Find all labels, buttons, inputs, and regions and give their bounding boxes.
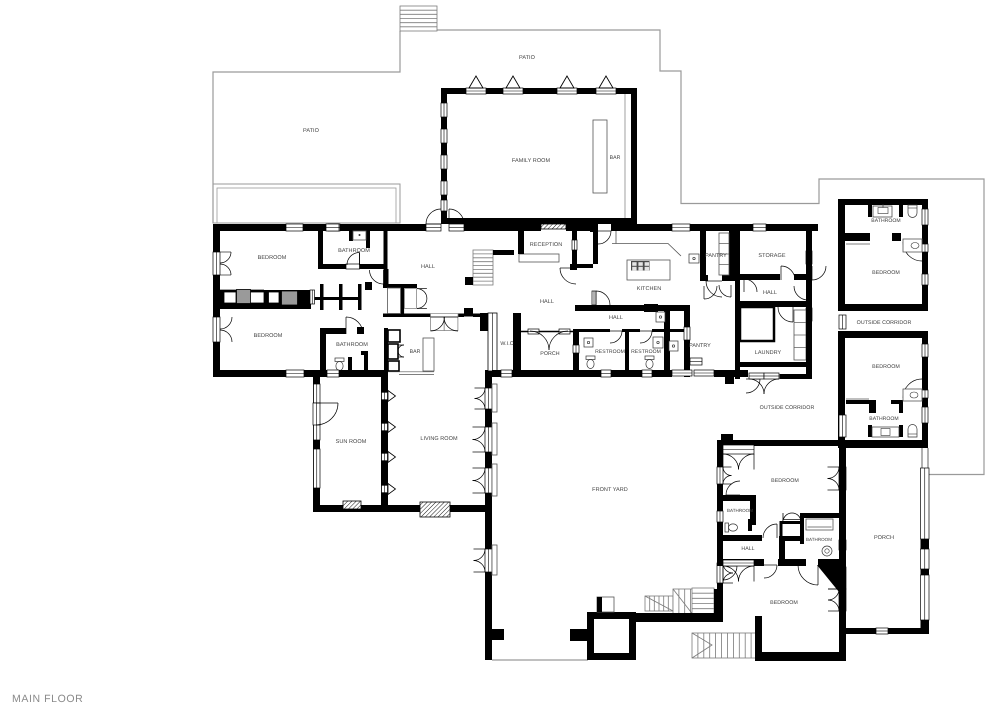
svg-text:SUN ROOM: SUN ROOM — [336, 439, 367, 445]
svg-text:MAIN FLOOR: MAIN FLOOR — [12, 693, 83, 705]
svg-text:LIVING ROOM: LIVING ROOM — [420, 436, 458, 442]
svg-text:LAUNDRY: LAUNDRY — [755, 350, 782, 356]
svg-text:BEDROOM: BEDROOM — [872, 364, 900, 370]
svg-text:HALL: HALL — [741, 546, 754, 552]
svg-text:BATHROOM: BATHROOM — [869, 416, 898, 422]
svg-text:PORCH: PORCH — [540, 351, 560, 357]
svg-text:PANTRY: PANTRY — [689, 343, 711, 349]
svg-text:BATHROOM: BATHROOM — [806, 537, 832, 542]
svg-text:HALL: HALL — [540, 299, 554, 305]
svg-text:BEDROOM: BEDROOM — [872, 270, 900, 276]
svg-text:HALL: HALL — [763, 290, 777, 296]
svg-text:PANTRY: PANTRY — [705, 253, 727, 259]
svg-text:STORAGE: STORAGE — [758, 253, 785, 259]
svg-text:RESTROOM: RESTROOM — [631, 349, 661, 355]
svg-text:RECEPTION: RECEPTION — [530, 242, 563, 248]
svg-text:PATIO: PATIO — [519, 55, 536, 61]
svg-text:BATHROOM: BATHROOM — [336, 342, 368, 348]
svg-text:BATHROOM: BATHROOM — [871, 218, 900, 224]
svg-text:FAMILY ROOM: FAMILY ROOM — [512, 158, 551, 164]
svg-text:RESTROOM: RESTROOM — [595, 349, 625, 355]
svg-text:OUTSIDE CORRIDOR: OUTSIDE CORRIDOR — [857, 320, 912, 326]
svg-text:BATHROOM: BATHROOM — [727, 508, 753, 513]
svg-text:OUTSIDE CORRIDOR: OUTSIDE CORRIDOR — [760, 405, 815, 411]
svg-text:BEDROOM: BEDROOM — [258, 255, 287, 261]
svg-text:BAR: BAR — [610, 155, 621, 161]
svg-text:KITCHEN: KITCHEN — [637, 286, 662, 292]
svg-text:HALL: HALL — [421, 264, 435, 270]
svg-text:FRONT YARD: FRONT YARD — [592, 487, 628, 493]
svg-text:W.I.C: W.I.C — [500, 341, 513, 347]
svg-text:BEDROOM: BEDROOM — [254, 333, 283, 339]
svg-text:PORCH: PORCH — [874, 535, 894, 541]
svg-text:BEDROOM: BEDROOM — [771, 478, 799, 484]
svg-text:PATIO: PATIO — [303, 128, 320, 134]
svg-text:BATHROOM: BATHROOM — [338, 248, 370, 254]
svg-text:BAR: BAR — [410, 349, 421, 355]
svg-text:HALL: HALL — [609, 315, 623, 321]
svg-text:BEDROOM: BEDROOM — [770, 600, 798, 606]
